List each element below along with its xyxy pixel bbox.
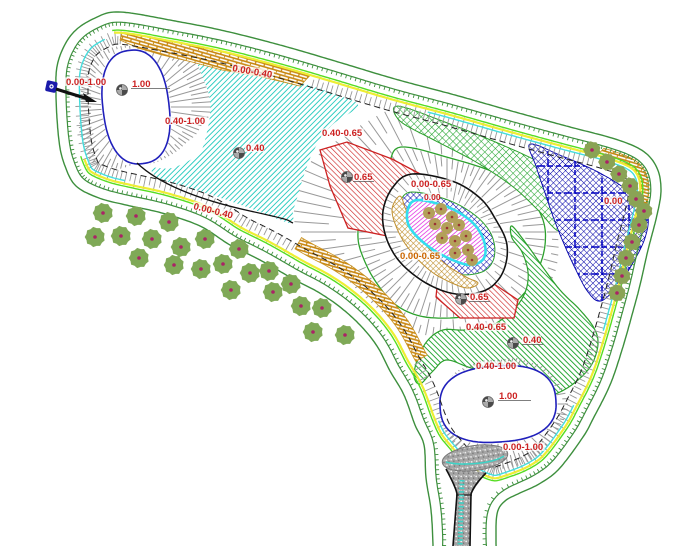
svg-text:0.40-1.00: 0.40-1.00 [165, 116, 205, 127]
svg-text:0.00-0.40: 0.00-0.40 [192, 201, 234, 221]
svg-text:0.00-1.00: 0.00-1.00 [503, 442, 543, 453]
svg-text:0.00: 0.00 [604, 196, 623, 207]
svg-text:0.00-0.65: 0.00-0.65 [400, 251, 441, 262]
svg-text:0.40-1.00: 0.40-1.00 [476, 361, 516, 372]
svg-text:0.40-0.65: 0.40-0.65 [466, 322, 507, 333]
svg-text:0.00: 0.00 [424, 192, 441, 202]
svg-text:0.00-0.65: 0.00-0.65 [411, 179, 452, 190]
svg-text:0.40: 0.40 [246, 143, 265, 154]
svg-text:0.40-0.65: 0.40-0.65 [322, 128, 363, 139]
svg-text:0.00-1.00: 0.00-1.00 [66, 77, 106, 88]
